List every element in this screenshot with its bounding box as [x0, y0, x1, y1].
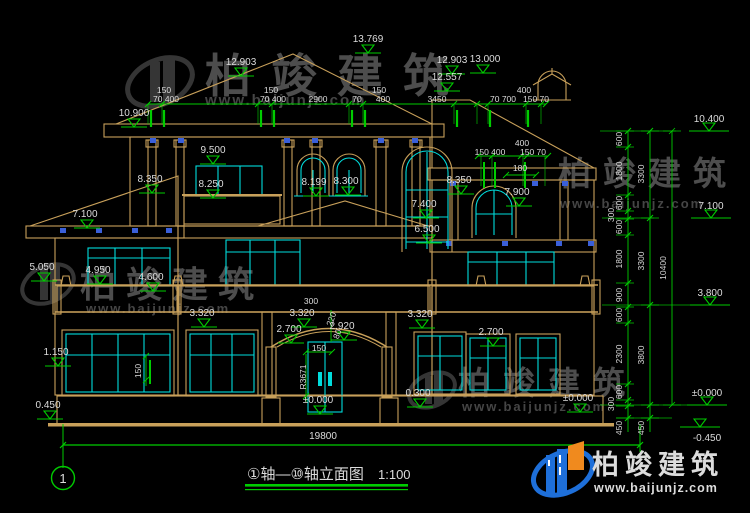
dim-label: 150 70 — [523, 94, 549, 104]
title-block: 1 ①轴—⑩轴立面图 1:100 — [52, 466, 411, 490]
chain-dim: 600 — [614, 220, 624, 234]
level-label: 8.250 — [198, 179, 223, 190]
dim-label: 2900 — [309, 94, 328, 104]
title-underline — [245, 484, 408, 487]
level-marker — [409, 320, 435, 328]
level-label: 12.903 — [437, 55, 468, 66]
chain-dim: 1800 — [614, 161, 624, 180]
dim-label: R3671 — [298, 364, 308, 389]
drawing-title: ①轴—⑩轴立面图 — [247, 466, 364, 483]
eave-band — [178, 226, 432, 238]
cad-elevation-screenshot: 柏竣建筑 www.baijunjz.com 柏竣建筑 www.baijunjz.… — [0, 0, 750, 513]
level-label: 10.900 — [119, 108, 150, 119]
brand-logo-name: 柏竣建筑 — [592, 449, 724, 480]
chain-dim: 3300 — [636, 164, 646, 183]
level-label: 0.450 — [35, 400, 60, 411]
dim-label: 400 — [376, 94, 390, 104]
level-label: 7.400 — [411, 199, 436, 210]
level-marker — [191, 319, 217, 327]
watermark-site: www.baijunjz.com — [559, 196, 704, 211]
chain-dim: 450 — [614, 421, 624, 435]
chain-dim: 450 — [636, 421, 646, 435]
level-label: 3.320 — [289, 308, 314, 319]
level-label: -0.450 — [693, 433, 722, 444]
dim-label: 70 400 — [260, 94, 286, 104]
level-marker — [37, 411, 63, 419]
level-label: 8.350 — [446, 175, 471, 186]
level-label: 12.557 — [432, 72, 463, 83]
dim-label: 150 — [133, 364, 143, 378]
dim-label: 3450 — [428, 94, 447, 104]
level-label: 12.903 — [226, 57, 257, 68]
level-label: ±0.000 — [563, 393, 594, 404]
chain-dim: 600 — [614, 132, 624, 146]
level-label: 13.769 — [353, 34, 384, 45]
level-label: 8.300 — [333, 176, 358, 187]
dim-label: 300 — [304, 296, 318, 306]
chain-dim: 3800 — [636, 345, 646, 364]
elevation-drawing: 柏竣建筑 www.baijunjz.com 柏竣建筑 www.baijunjz.… — [0, 0, 750, 513]
level-label: 1.150 — [43, 347, 68, 358]
title-underline — [245, 489, 408, 490]
chain-dim: 2300 — [614, 344, 624, 363]
level-label: 2.700 — [276, 324, 301, 335]
chain-dim: 1800 — [614, 249, 624, 268]
level-label: 3.320 — [189, 308, 214, 319]
level-marker — [200, 156, 226, 164]
level-marker — [45, 358, 71, 366]
level-label: 9.500 — [200, 145, 225, 156]
level-label: ±0.000 — [692, 388, 723, 399]
eave-band — [430, 240, 596, 252]
right-wing-wall — [432, 180, 594, 395]
level-label: 0.300 — [405, 388, 430, 399]
chain-dim: 300 — [606, 397, 616, 411]
brand-logo-site: www.baijunjz.com — [593, 481, 718, 495]
watermark-brand: 柏竣建筑 — [558, 155, 738, 192]
dim-label: 180 — [513, 163, 527, 173]
chain-dim: 3300 — [636, 251, 646, 270]
level-marker — [335, 187, 361, 195]
level-label: 7.100 — [698, 201, 723, 212]
dim-label: 150 — [312, 343, 326, 353]
level-label: 4.600 — [138, 272, 163, 283]
level-marker — [74, 220, 100, 228]
eave-band — [26, 226, 184, 238]
level-marker — [139, 185, 165, 193]
level-label: ±0.000 — [303, 395, 334, 406]
dim-label: 70 — [352, 94, 362, 104]
level-label: 7.900 — [504, 187, 529, 198]
level-marker — [680, 419, 720, 427]
level-label: 8.199 — [301, 177, 326, 188]
level-label: 8.350 — [137, 174, 162, 185]
level-label: 10.400 — [694, 114, 725, 125]
level-marker — [307, 406, 333, 414]
chain-dim: 900 — [614, 288, 624, 302]
level-marker — [470, 65, 496, 73]
level-label: 7.100 — [72, 209, 97, 220]
ground-plate — [48, 423, 614, 427]
arched-window — [330, 154, 368, 196]
dim-label: 150 400 — [475, 147, 506, 157]
brand-logo: 柏竣建筑 www.baijunjz.com — [527, 441, 724, 504]
level-marker — [480, 338, 506, 346]
brand-logo-icon — [527, 441, 600, 504]
level-label: 2.700 — [478, 327, 503, 338]
dim-label: 70 700 — [490, 94, 516, 104]
drawing-scale: 1:100 — [378, 467, 411, 482]
level-label: 4.950 — [85, 265, 110, 276]
level-label: 13.000 — [470, 54, 501, 65]
chain-dim: 600 — [614, 308, 624, 322]
ground-width-label: 19800 — [309, 431, 337, 442]
arched-window — [294, 154, 332, 196]
dim-label: 70 400 — [153, 94, 179, 104]
level-label: 3.320 — [407, 309, 432, 320]
axis-bubble-number: 1 — [59, 471, 66, 486]
level-label: 3.800 — [697, 288, 722, 299]
balcony-balustrade — [184, 196, 280, 224]
level-label: 5.050 — [29, 262, 54, 273]
chain-dim: 10400 — [658, 256, 668, 280]
level-label: 6.500 — [414, 224, 439, 235]
left-wing-wall — [55, 238, 178, 395]
dim-label: 150 70 — [520, 147, 546, 157]
